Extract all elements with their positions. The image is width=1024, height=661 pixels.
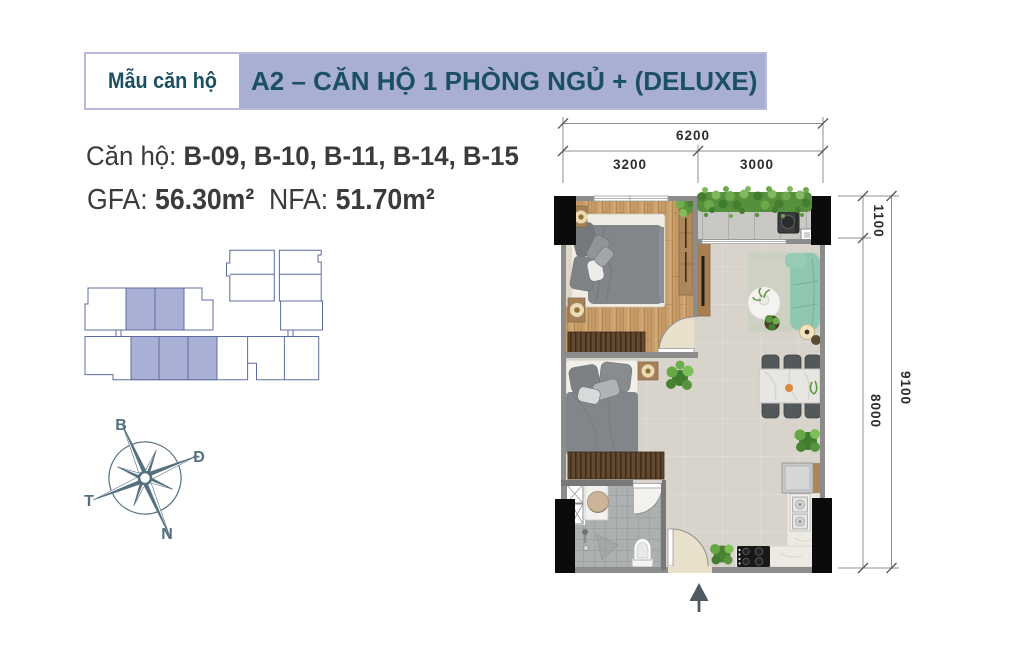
- svg-text:T: T: [84, 493, 94, 510]
- svg-text:1100: 1100: [871, 204, 886, 237]
- svg-text:6200: 6200: [676, 128, 710, 143]
- svg-text:B: B: [115, 417, 127, 434]
- svg-text:Đ: Đ: [193, 449, 205, 466]
- svg-text:3200: 3200: [613, 157, 647, 172]
- svg-text:3000: 3000: [740, 157, 774, 172]
- svg-text:N: N: [161, 526, 173, 543]
- svg-text:9100: 9100: [898, 371, 913, 405]
- svg-text:8000: 8000: [868, 394, 883, 428]
